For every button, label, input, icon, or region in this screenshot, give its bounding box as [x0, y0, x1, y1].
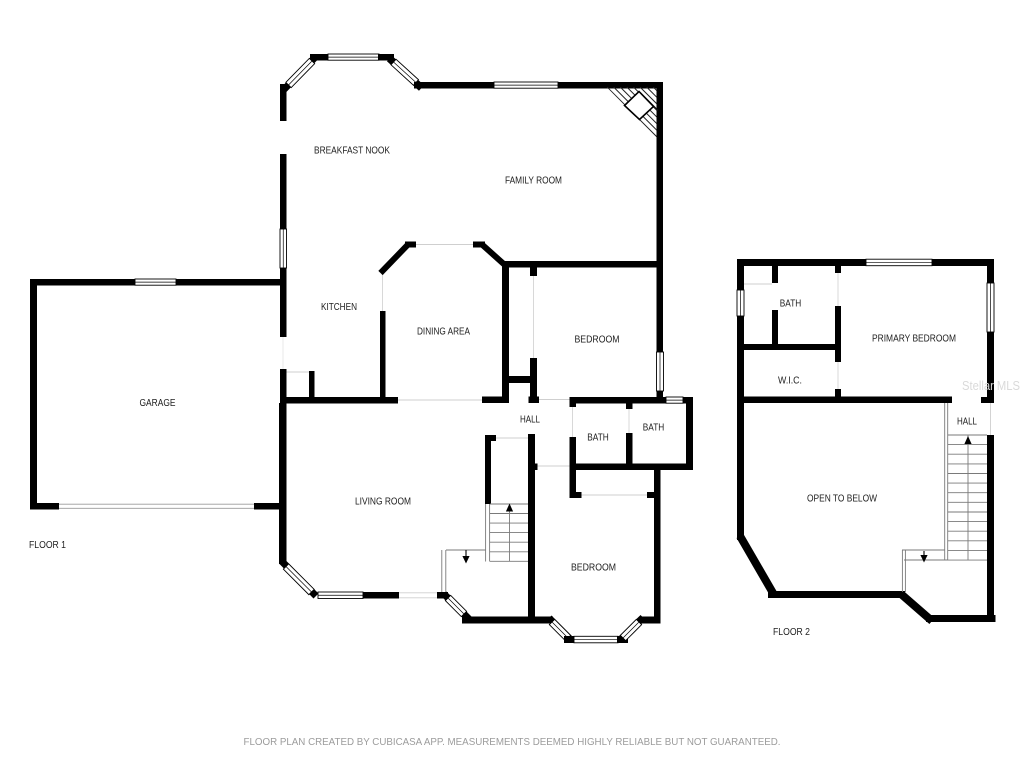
svg-text:W.I.C.: W.I.C. — [778, 376, 802, 387]
svg-text:BATH: BATH — [780, 299, 802, 310]
svg-text:KITCHEN: KITCHEN — [321, 302, 357, 313]
svg-text:LIVING ROOM: LIVING ROOM — [355, 497, 411, 508]
svg-text:HALL: HALL — [520, 415, 540, 426]
svg-text:FLOOR 2: FLOOR 2 — [773, 627, 810, 638]
svg-text:GARAGE: GARAGE — [140, 398, 176, 409]
svg-text:OPEN TO BELOW: OPEN TO BELOW — [807, 494, 877, 505]
svg-text:FAMILY ROOM: FAMILY ROOM — [505, 176, 562, 187]
svg-text:BEDROOM: BEDROOM — [571, 563, 616, 574]
svg-text:BATH: BATH — [643, 423, 665, 434]
svg-text:Stellar MLS: Stellar MLS — [962, 379, 1020, 393]
svg-text:FLOOR 1: FLOOR 1 — [29, 540, 66, 551]
svg-text:DINING AREA: DINING AREA — [417, 327, 470, 338]
svg-text:BATH: BATH — [587, 433, 609, 444]
svg-text:PRIMARY BEDROOM: PRIMARY BEDROOM — [872, 334, 956, 345]
svg-text:HALL: HALL — [957, 417, 977, 428]
svg-text:BEDROOM: BEDROOM — [575, 335, 620, 346]
svg-text:FLOOR PLAN CREATED BY CUBICASA: FLOOR PLAN CREATED BY CUBICASA APP. MEAS… — [244, 737, 781, 748]
svg-text:BREAKFAST NOOK: BREAKFAST NOOK — [314, 146, 390, 157]
